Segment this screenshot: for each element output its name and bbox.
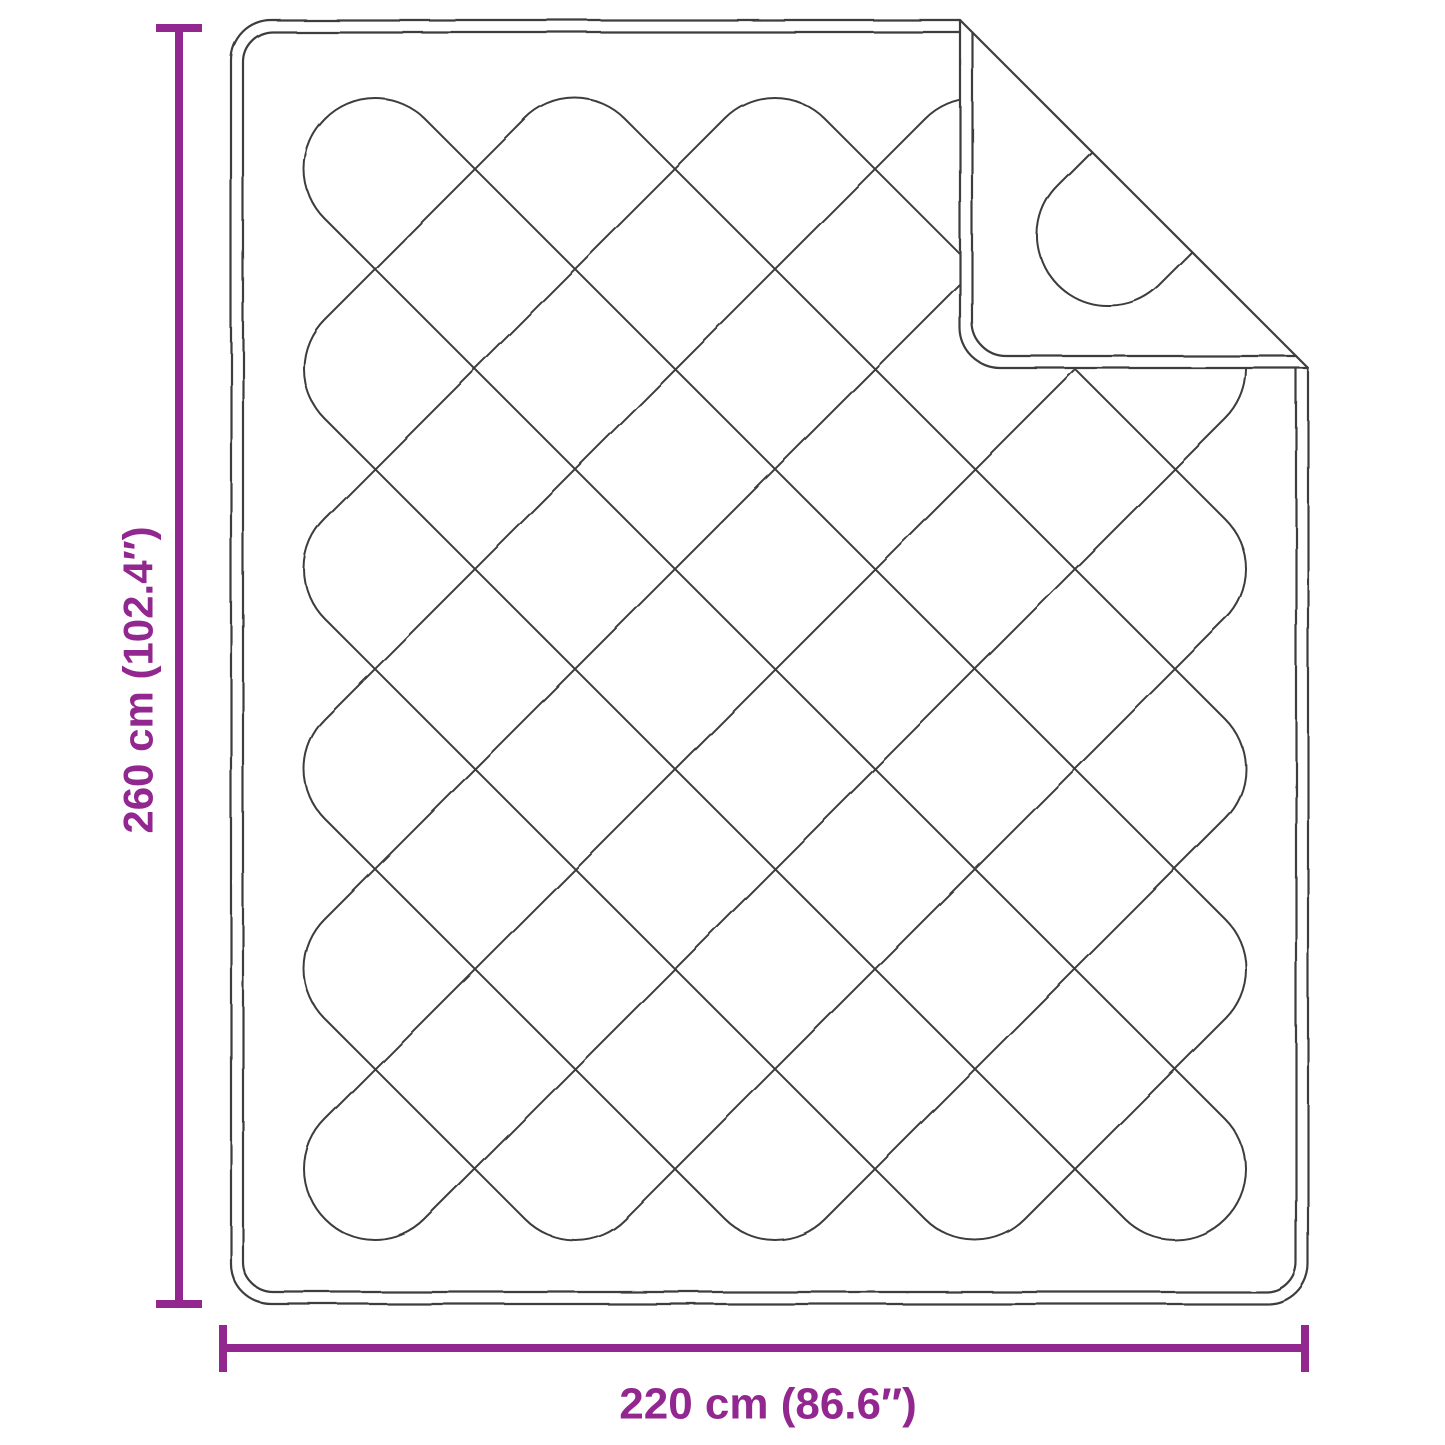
width-dimension-line: 220 cm (86.6″) [219, 1325, 1309, 1429]
quilting-pattern [304, 98, 1246, 1240]
fold-crease-edge [960, 20, 1308, 368]
blanket-dimension-drawing: 260 cm (102.4″) 220 cm (86.6″) [0, 0, 1445, 1445]
width-dimension-left-cap [219, 1325, 227, 1372]
height-dimension-bar [175, 24, 183, 1308]
width-dimension-right-cap [1301, 1325, 1309, 1372]
height-dimension-top-cap [156, 24, 202, 32]
height-label: 260 cm (102.4″) [115, 526, 162, 833]
width-dimension-bar [222, 1344, 1308, 1352]
height-dimension-bottom-cap [156, 1300, 202, 1308]
width-label: 220 cm (86.6″) [619, 1380, 916, 1429]
blanket-outline [231, 20, 1308, 1304]
blanket-inner-stitch-border [243, 32, 1296, 1292]
height-dimension-line: 260 cm (102.4″) [115, 24, 203, 1308]
blanket-drawing [231, 20, 1308, 1304]
product-dimension-diagram: 260 cm (102.4″) 220 cm (86.6″) [0, 0, 1445, 1445]
